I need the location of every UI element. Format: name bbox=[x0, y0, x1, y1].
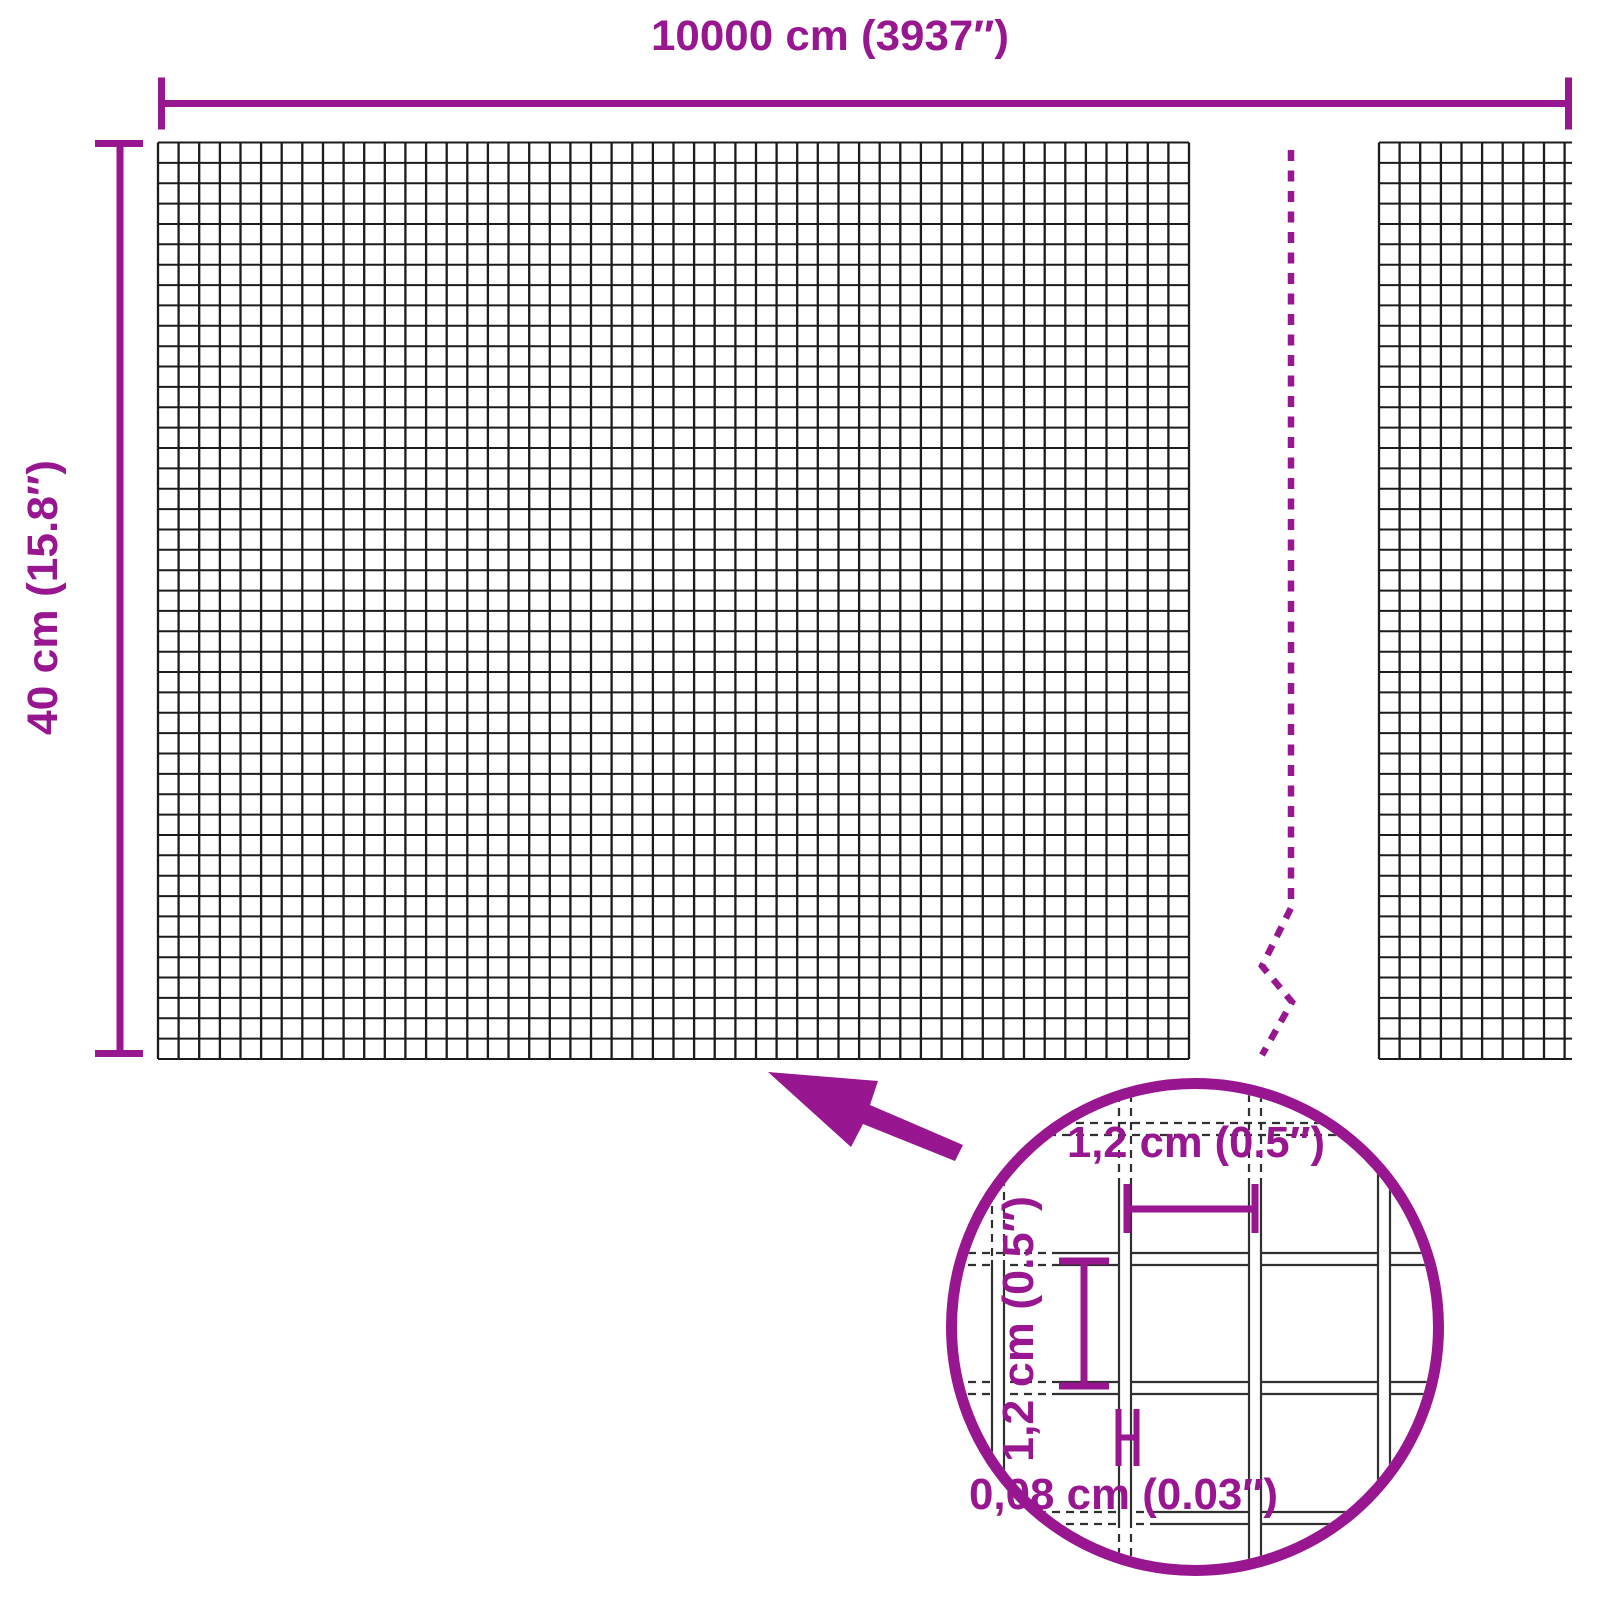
svg-text:1,2 cm (0.5″): 1,2 cm (0.5″) bbox=[994, 1196, 1043, 1462]
svg-text:40 cm (15.8″): 40 cm (15.8″) bbox=[19, 460, 67, 735]
svg-text:0,08 cm (0.03″): 0,08 cm (0.03″) bbox=[969, 1470, 1278, 1519]
svg-text:1,2 cm (0.5″): 1,2 cm (0.5″) bbox=[1067, 1118, 1325, 1167]
svg-text:10000 cm (3937″): 10000 cm (3937″) bbox=[651, 12, 1009, 60]
